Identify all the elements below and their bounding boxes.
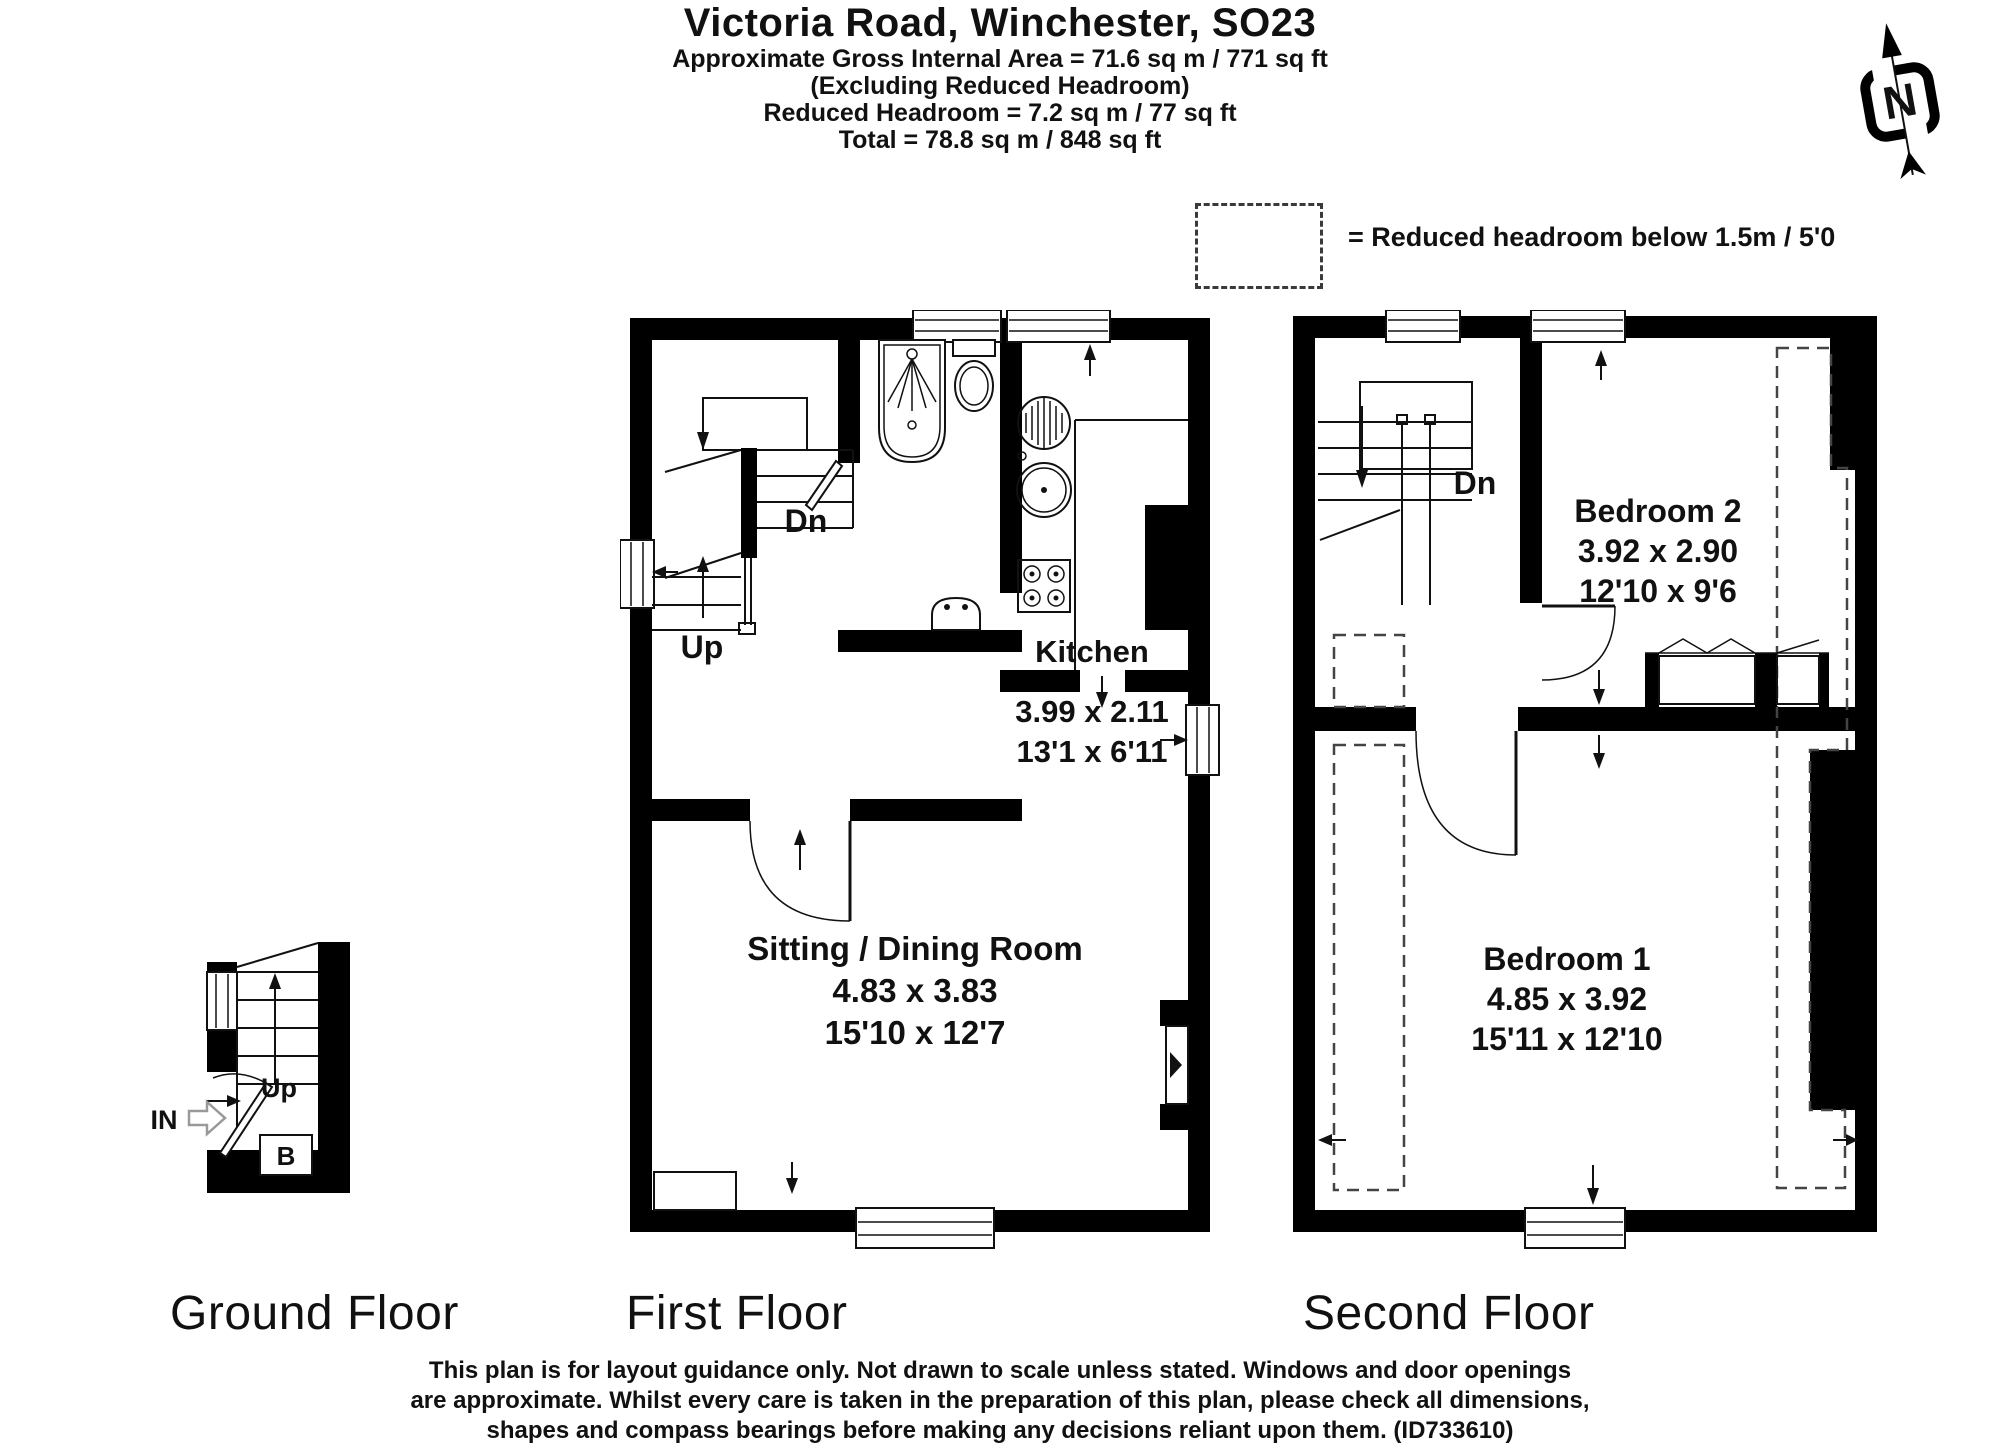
window-bedroom1-bottom <box>1525 1208 1625 1248</box>
bedroom2-name: Bedroom 2 <box>1574 493 1741 529</box>
boiler-label: B <box>277 1141 296 1171</box>
bedroom1-metric: 4.85 x 3.92 <box>1487 981 1647 1017</box>
north-compass-icon: N <box>1812 0 1987 205</box>
door-marker-arrow <box>227 1095 241 1107</box>
sitting-name: Sitting / Dining Room <box>747 930 1082 967</box>
sitting-room-door <box>750 821 850 921</box>
kitchen-imperial: 13'1 x 6'11 <box>1017 734 1168 769</box>
kitchen-metric: 3.99 x 2.11 <box>1015 694 1168 729</box>
sink <box>1017 463 1071 517</box>
first-up-label: Up <box>681 629 724 665</box>
window-hall-left <box>620 540 654 608</box>
disclaimer-line-1: This plan is for layout guidance only. N… <box>0 1356 2000 1386</box>
reduced-headroom-line: Reduced Headroom = 7.2 sq m / 77 sq ft <box>0 100 2000 127</box>
bedroom1-imperial: 15'11 x 12'10 <box>1471 1021 1662 1057</box>
floorplan-page: Victoria Road, Winchester, SO23 Approxim… <box>0 0 2000 1456</box>
first-dn-label: Dn <box>785 503 828 539</box>
second-stairs <box>1318 382 1472 605</box>
bedroom2-imperial: 12'10 x 9'6 <box>1579 573 1737 609</box>
disclaimer: This plan is for layout guidance only. N… <box>0 1356 2000 1446</box>
sitting-imperial: 15'10 x 12'7 <box>825 1014 1006 1051</box>
gross-area-line: Approximate Gross Internal Area = 71.6 s… <box>0 46 2000 73</box>
hearth <box>654 1172 736 1210</box>
first-floor-plan: Dn Up Kitchen 3.99 x 2.11 13'1 x 6'11 Si… <box>620 310 1220 1250</box>
window-kitchen-top <box>1007 310 1110 342</box>
compass-letter: N <box>1879 73 1921 130</box>
dn-arrow <box>1356 470 1368 488</box>
bedroom1-name: Bedroom 1 <box>1483 941 1650 977</box>
page-title: Victoria Road, Winchester, SO23 <box>0 0 2000 46</box>
up-arrow <box>269 973 281 989</box>
eaves-line <box>237 943 318 967</box>
window-bedroom2-top <box>1531 310 1625 342</box>
toilet <box>953 340 995 411</box>
hob <box>1018 560 1070 612</box>
window-bathroom-top <box>913 310 1001 342</box>
ground-floor-plan: B Up IN <box>145 935 385 1275</box>
window-kitchen-right <box>1186 705 1219 775</box>
second-dn-label: Dn <box>1454 465 1497 501</box>
window-landing-top <box>1386 310 1460 342</box>
dn-arrow <box>697 432 709 450</box>
second-walls <box>1293 316 1877 1232</box>
bedroom2-metric: 3.92 x 2.90 <box>1578 533 1738 569</box>
bedroom2-door <box>1542 606 1615 680</box>
first-floor-label: First Floor <box>626 1286 848 1341</box>
wardrobe <box>1645 639 1829 707</box>
first-marker-arrows <box>652 344 1188 1194</box>
second-floor-label: Second Floor <box>1303 1286 1595 1341</box>
header: Victoria Road, Winchester, SO23 Approxim… <box>0 0 2000 154</box>
in-label: IN <box>151 1105 178 1135</box>
bedroom1-door <box>1416 731 1516 855</box>
ground-up-label: Up <box>261 1073 297 1103</box>
excluding-line: (Excluding Reduced Headroom) <box>0 73 2000 100</box>
chimney-breast <box>1160 1000 1188 1130</box>
kitchen-name: Kitchen <box>1035 634 1149 669</box>
ground-floor-label: Ground Floor <box>170 1286 459 1341</box>
total-line: Total = 78.8 sq m / 848 sq ft <box>0 127 2000 154</box>
ground-window <box>207 972 237 1030</box>
second-windows <box>1386 310 1625 1248</box>
second-floor-plan: Dn Bedroom 2 3.92 x 2.90 12'10 x 9'6 Bed… <box>1290 310 1890 1250</box>
basin <box>932 598 980 630</box>
legend-label: = Reduced headroom below 1.5m / 5'0 <box>1348 222 1835 253</box>
in-arrow-icon <box>189 1102 225 1134</box>
draining-board <box>1018 397 1070 449</box>
disclaimer-line-3: shapes and compass bearings before makin… <box>0 1416 2000 1446</box>
sitting-metric: 4.83 x 3.83 <box>832 972 997 1009</box>
reduced-headroom-swatch <box>1195 203 1323 289</box>
disclaimer-line-2: are approximate. Whilst every care is ta… <box>0 1386 2000 1416</box>
bathtub <box>879 340 945 462</box>
window-sitting-bottom <box>856 1208 994 1248</box>
